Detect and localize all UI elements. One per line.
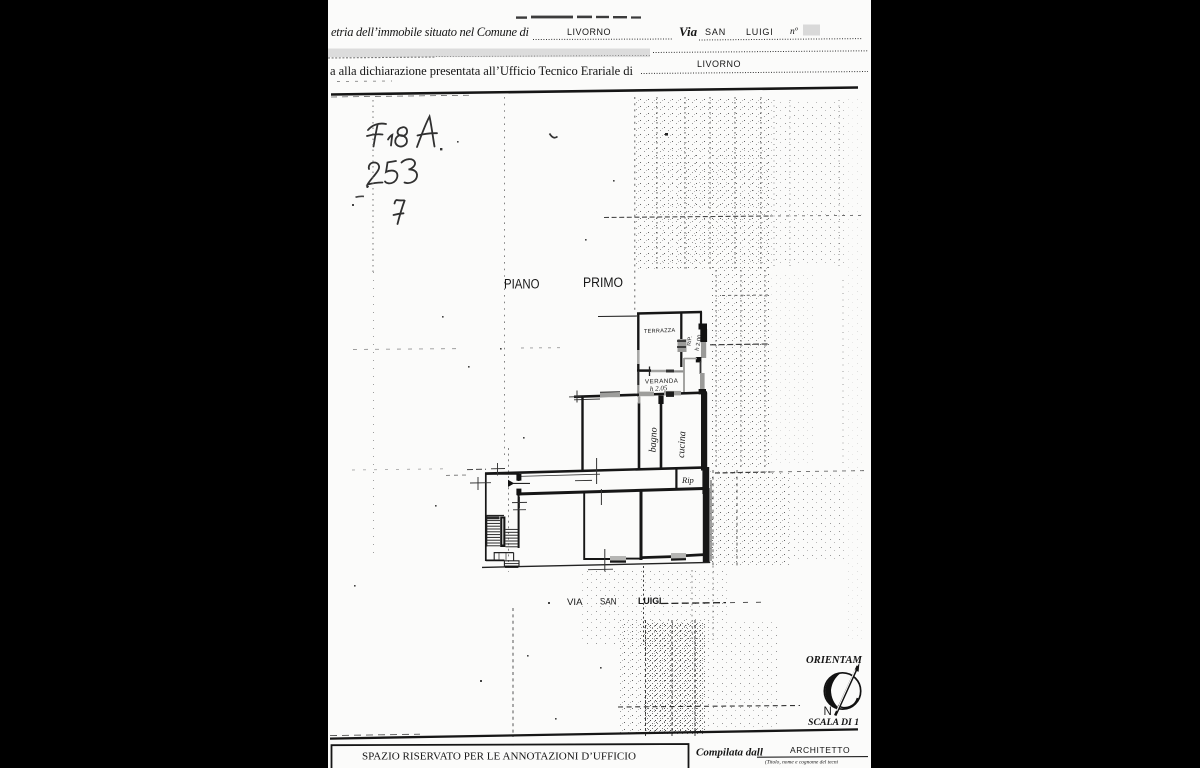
svg-text:RIP.: RIP.	[687, 336, 694, 346]
svg-text:a alla dichiarazione presentat: a alla dichiarazione presentata all’Uffi…	[330, 64, 634, 78]
svg-text:TERRAZZA: TERRAZZA	[644, 328, 676, 335]
svg-text:LUIGI: LUIGI	[638, 596, 662, 607]
svg-text:Via: Via	[679, 24, 698, 39]
svg-text:bagno: bagno	[648, 427, 660, 453]
svg-text:PIANO: PIANO	[504, 277, 540, 292]
svg-text:PRIMO: PRIMO	[583, 275, 623, 290]
svg-text:LUIGI: LUIGI	[746, 27, 774, 37]
svg-text:nº: nº	[790, 27, 799, 37]
svg-text:SAN: SAN	[600, 597, 617, 608]
svg-text:cucina: cucina	[676, 431, 688, 458]
svg-text:Compilata dall: Compilata dall	[696, 747, 764, 759]
svg-text:SCALA DI 1: SCALA DI 1	[808, 717, 859, 728]
svg-text:SAN: SAN	[705, 27, 726, 37]
svg-text:ARCHITETTO: ARCHITETTO	[790, 745, 850, 755]
svg-text:ORIENTAM: ORIENTAM	[806, 655, 863, 666]
svg-text:LIVORNO: LIVORNO	[567, 27, 611, 37]
svg-text:VIA: VIA	[567, 597, 583, 608]
svg-text:SPAZIO RISERVATO PER LE ANNOTA: SPAZIO RISERVATO PER LE ANNOTAZIONI D’UF…	[362, 751, 636, 763]
svg-text:Rip: Rip	[681, 475, 694, 485]
svg-text:etria dell’immobile situato ne: etria dell’immobile situato nel Comune d…	[331, 25, 530, 39]
svg-text:LIVORNO: LIVORNO	[697, 59, 741, 69]
svg-text:(Titolo, nome e cognome del te: (Titolo, nome e cognome del tecni	[765, 759, 839, 766]
